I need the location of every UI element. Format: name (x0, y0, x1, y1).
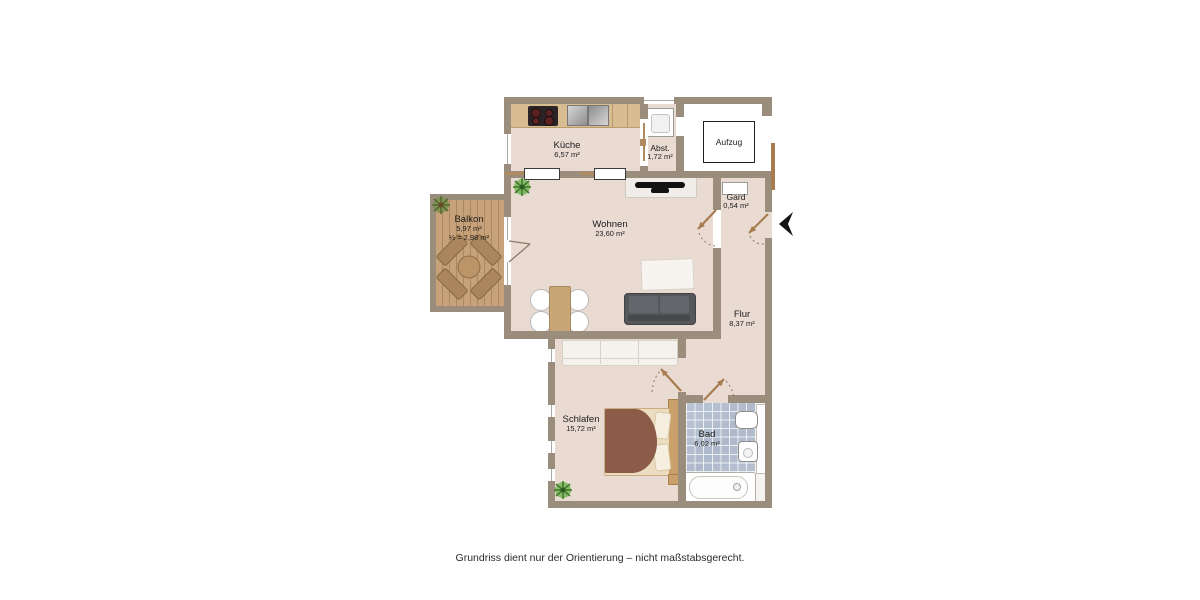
sliding-door (594, 168, 626, 180)
kitchen-sink (588, 105, 609, 126)
room-label-kueche: Küche 6,57 m² (554, 140, 581, 160)
room-label-garderobe: Gard 0,54 m² (723, 192, 748, 211)
sliding-door (524, 168, 560, 180)
outer-wall-bottom (548, 501, 772, 508)
dining-table (549, 286, 571, 336)
wardrobe (562, 340, 678, 366)
wardrobe-rail (562, 358, 676, 359)
room-area: 23,60 m² (592, 230, 627, 239)
living-window (504, 262, 511, 285)
kitchen-storage-door-handle (640, 139, 646, 146)
sofa-cushion (660, 296, 689, 313)
balcony-rail-left (430, 194, 436, 312)
room-label-wohnen: Wohnen 23,60 m² (592, 219, 627, 239)
washing-machine-door (651, 114, 670, 133)
elevator-box: Aufzug (703, 121, 755, 163)
tv-stand (651, 188, 669, 193)
room-label-bad: Bad 6,02 m² (694, 429, 719, 449)
kitchen-sink (567, 105, 588, 126)
entrance-arrow-icon (779, 212, 793, 236)
kitchen-counter-seam (612, 104, 613, 127)
bed-blanket (605, 409, 657, 473)
storage-window (644, 97, 674, 104)
balcony-rail-bottom (430, 306, 511, 312)
bedroom-window (548, 349, 555, 362)
room-area: 15,72 m² (563, 425, 600, 434)
sideboard (640, 258, 694, 291)
hall-pocket-floor (686, 339, 765, 403)
wall-bath-top-right (728, 395, 765, 403)
entrance-opening (765, 212, 772, 238)
living-window (504, 217, 511, 240)
bath-sink (735, 411, 758, 429)
wall-living-bedroom (504, 331, 721, 339)
balcony-rail-top (430, 194, 511, 200)
room-label-flur: Flur 8,37 m² (729, 309, 754, 329)
plan-disclaimer-caption: Grundriss dient nur der Orientierung – n… (0, 552, 1200, 564)
bedroom-window (548, 405, 555, 417)
bedroom-window (548, 469, 555, 481)
room-label-balkon: Balkon 5,97 m² ½ = 2,98 m² (449, 214, 489, 243)
storage-niche (676, 117, 684, 136)
living-door-opening (713, 210, 721, 248)
elevator-label: Aufzug (716, 137, 742, 147)
sofa-cushion (629, 296, 658, 313)
room-label-schlafen: Schlafen 15,72 m² (563, 414, 600, 434)
cooktop-burner (532, 117, 540, 125)
bathtub-drain (733, 483, 741, 491)
kitchen-window (504, 134, 511, 164)
bedroom-door-opening (678, 358, 686, 392)
sofa-backrest (628, 315, 690, 321)
room-area: 1,72 m² (647, 153, 672, 162)
toilet-bowl (743, 448, 753, 458)
stairwell-door-strip (771, 143, 775, 190)
floor-plan-canvas: Aufzug (0, 0, 1200, 600)
cooktop-burner (544, 116, 554, 126)
outer-wall-top (504, 97, 772, 104)
room-area: 0,54 m² (723, 202, 748, 211)
wall-storage-stairwell (676, 104, 684, 171)
bedroom-window (548, 441, 555, 453)
room-label-abstellraum: Abst. 1,72 m² (647, 143, 672, 162)
sliding-door-rail (580, 172, 594, 175)
room-area: 6,02 m² (694, 440, 719, 449)
balcony-door-opening (504, 240, 511, 262)
wall-living-hall (713, 176, 721, 339)
kitchen-counter-seam (627, 104, 628, 127)
room-area: 8,37 m² (729, 320, 754, 329)
outer-wall-right-stub (762, 104, 772, 116)
wardrobe-divider (600, 340, 601, 364)
outer-wall-right-lower (765, 238, 772, 508)
room-area-half: ½ = 2,98 m² (449, 234, 489, 243)
wall-bath-top-left (686, 395, 703, 403)
sliding-door-rail (505, 172, 525, 175)
room-area: 6,57 m² (554, 151, 581, 160)
wardrobe-divider (638, 340, 639, 364)
